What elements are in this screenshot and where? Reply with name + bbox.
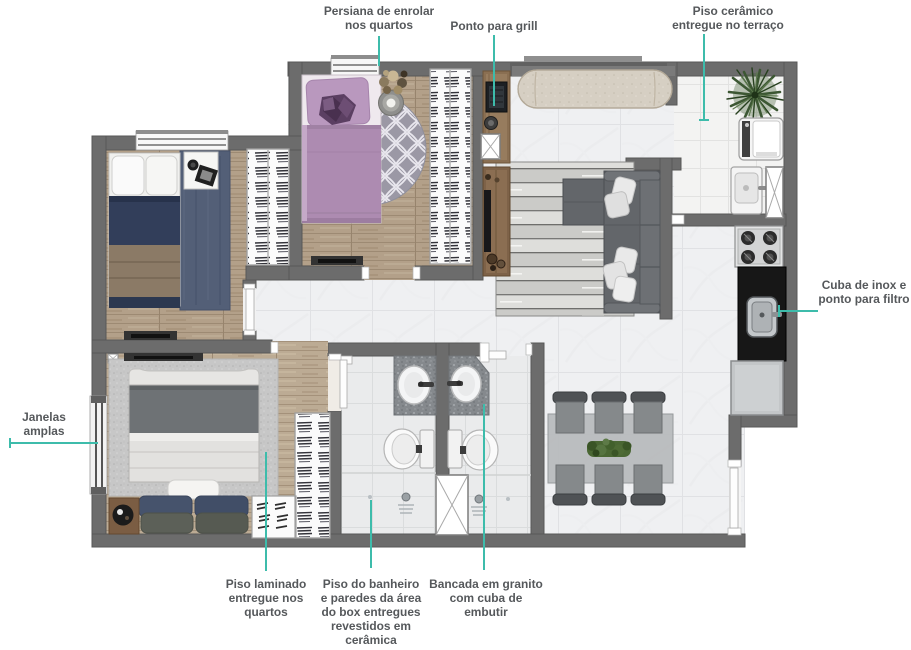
svg-text:entregue nos: entregue nos xyxy=(229,591,304,605)
svg-text:Cuba de inox e: Cuba de inox e xyxy=(822,278,907,292)
svg-text:ponto para filtro: ponto para filtro xyxy=(818,292,909,306)
svg-text:Bancada em granito: Bancada em granito xyxy=(429,577,543,591)
svg-text:com cuba de: com cuba de xyxy=(450,591,523,605)
svg-text:entregue no terraço: entregue no terraço xyxy=(672,18,784,32)
svg-text:Persiana de enrolar: Persiana de enrolar xyxy=(324,4,435,18)
svg-text:e paredes da área: e paredes da área xyxy=(321,591,422,605)
svg-text:revestidos em: revestidos em xyxy=(331,619,411,633)
svg-text:embutir: embutir xyxy=(464,605,508,619)
svg-text:cerâmica: cerâmica xyxy=(345,633,397,647)
svg-text:amplas: amplas xyxy=(24,424,65,438)
svg-text:Piso cerâmico: Piso cerâmico xyxy=(693,4,774,18)
svg-text:Janelas: Janelas xyxy=(22,410,66,424)
svg-text:nos quartos: nos quartos xyxy=(345,18,413,32)
svg-text:Piso do banheiro: Piso do banheiro xyxy=(323,577,419,591)
svg-text:do box entregues: do box entregues xyxy=(321,605,420,619)
svg-text:Ponto para grill: Ponto para grill xyxy=(450,19,537,33)
svg-text:quartos: quartos xyxy=(244,605,288,619)
svg-text:Piso laminado: Piso laminado xyxy=(226,577,307,591)
